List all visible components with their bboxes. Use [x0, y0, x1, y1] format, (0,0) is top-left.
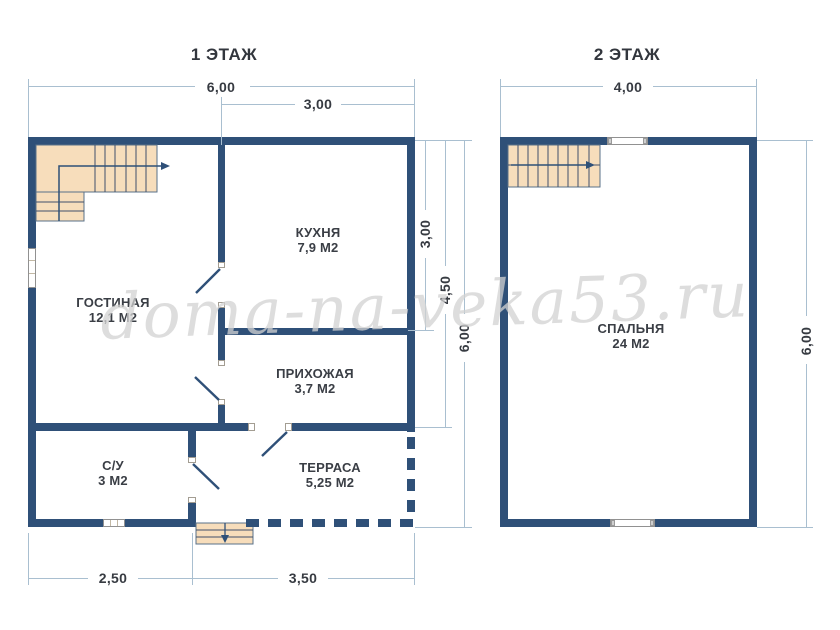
extension-line [28, 533, 29, 585]
dimension-line [425, 140, 426, 210]
room-area: 3 М2 [98, 473, 128, 488]
extension-line [408, 330, 434, 331]
room-area: 12,1 М2 [76, 310, 149, 325]
dimension-label-width-total-f2: 4,00 [614, 79, 642, 95]
dimension-line [221, 104, 295, 105]
dimension-label-height-total-f2: 6,00 [798, 327, 814, 355]
room-name: ГОСТИНАЯ [76, 295, 149, 310]
extension-line [757, 527, 813, 528]
extension-line [756, 79, 757, 137]
extension-line [192, 533, 193, 585]
dimension-line [28, 578, 88, 579]
room-label-hall: ПРИХОЖАЯ 3,7 М2 [276, 366, 354, 396]
dimension-label-bottom-left: 2,50 [99, 570, 127, 586]
dimension-line [250, 86, 415, 87]
dimension-line [500, 86, 603, 87]
dimension-line [425, 258, 426, 330]
dimension-label-height-kitchen: 3,00 [417, 220, 433, 248]
porch-steps [196, 523, 253, 544]
floor1-title: 1 ЭТАЖ [191, 45, 257, 65]
dimension-line [806, 364, 807, 527]
extension-line [221, 97, 222, 145]
room-name: ТЕРРАСА [299, 460, 361, 475]
dimension-line [464, 362, 465, 527]
stairs-floor1 [36, 145, 170, 221]
dimension-label-width-kitchen: 3,00 [304, 96, 332, 112]
floor-plan-canvas: 1 ЭТАЖ 2 ЭТАЖ 6,00 3,00 3,00 4,50 6,00 2… [0, 0, 840, 630]
extension-line [415, 427, 452, 428]
dimension-line [464, 140, 465, 314]
stairs-floor2 [508, 145, 600, 187]
room-name: СПАЛЬНЯ [598, 321, 665, 336]
room-name: ПРИХОЖАЯ [276, 366, 354, 381]
extension-line [414, 79, 415, 137]
door-leaf-terrace [262, 432, 287, 456]
dimension-line [328, 578, 415, 579]
door-leaves [193, 269, 287, 489]
door-leaf-bath [193, 464, 219, 489]
dimension-label-height-total-f1: 6,00 [456, 324, 472, 352]
room-area: 5,25 М2 [299, 475, 361, 490]
room-label-bath: С/У 3 М2 [98, 458, 128, 488]
door-leaf-kitchen [196, 269, 220, 293]
dimension-label-width-total-f1: 6,00 [207, 79, 235, 95]
door-leaf-hall [195, 377, 219, 400]
dimension-line [138, 578, 278, 579]
extension-line [415, 140, 472, 141]
stair-direction-arrow [161, 162, 170, 170]
floor2-title: 2 ЭТАЖ [594, 45, 660, 65]
extension-line [414, 533, 415, 585]
dimension-line [445, 140, 446, 266]
extension-line [500, 79, 501, 137]
dimension-line [806, 140, 807, 316]
dimension-line [653, 86, 757, 87]
extension-line [415, 527, 472, 528]
room-area: 7,9 М2 [296, 240, 341, 255]
extension-line [28, 79, 29, 137]
extension-line [757, 140, 813, 141]
room-area: 3,7 М2 [276, 381, 354, 396]
room-name: КУХНЯ [296, 225, 341, 240]
room-label-living: ГОСТИНАЯ 12,1 М2 [76, 295, 149, 325]
dimension-line [28, 86, 195, 87]
dimension-line [445, 314, 446, 427]
room-label-kitchen: КУХНЯ 7,9 М2 [296, 225, 341, 255]
dimension-label-height-to-hall: 4,50 [437, 276, 453, 304]
room-area: 24 М2 [598, 336, 665, 351]
dimension-line [341, 104, 415, 105]
dimension-label-bottom-right: 3,50 [289, 570, 317, 586]
room-label-bedroom: СПАЛЬНЯ 24 М2 [598, 321, 665, 351]
room-label-terrace: ТЕРРАСА 5,25 М2 [299, 460, 361, 490]
room-name: С/У [98, 458, 128, 473]
